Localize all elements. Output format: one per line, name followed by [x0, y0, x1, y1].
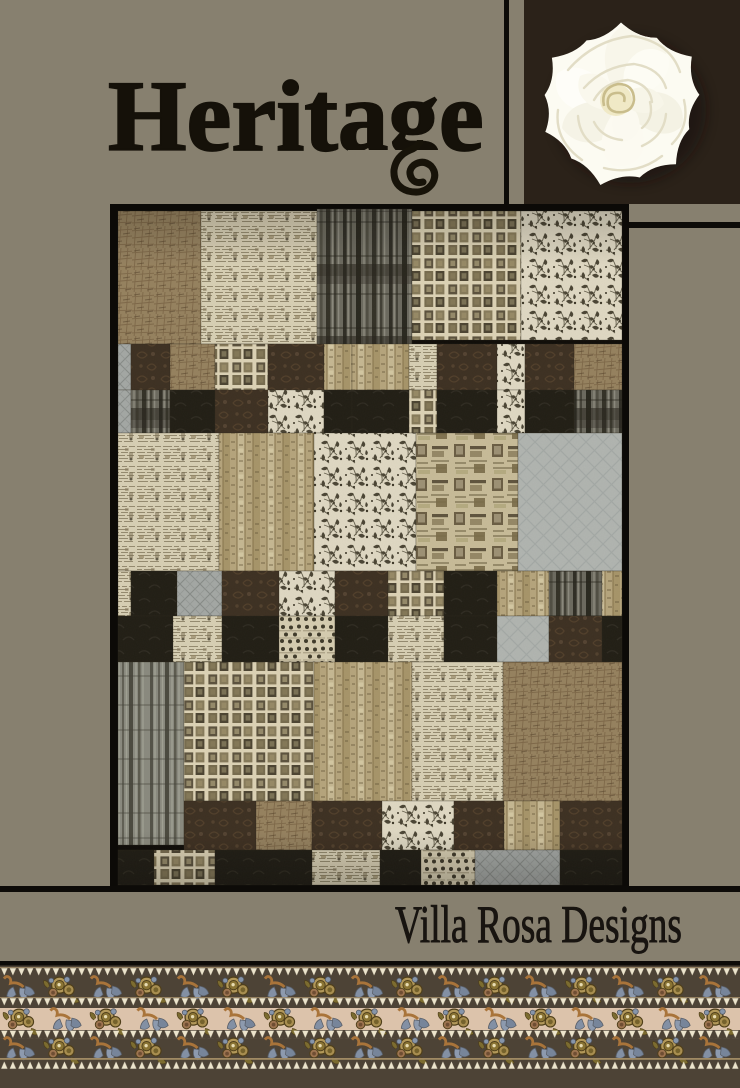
- svg-text:Villa Rosa Designs: Villa Rosa Designs: [395, 896, 682, 954]
